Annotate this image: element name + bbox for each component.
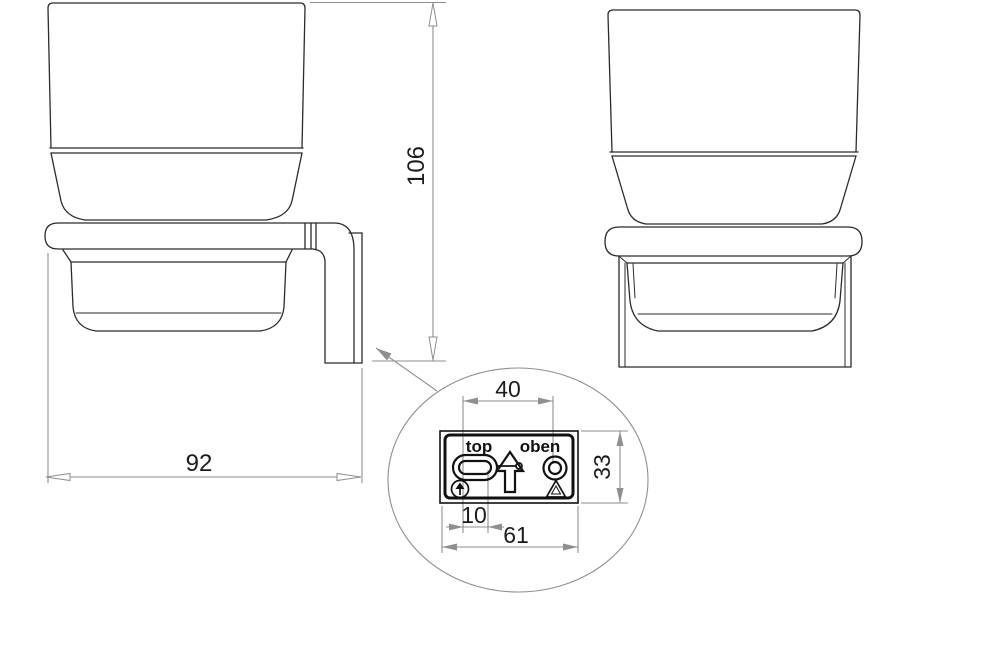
front-glass <box>627 263 843 331</box>
dim-label-40: 40 <box>495 376 521 402</box>
dim-label-10: 10 <box>461 502 487 528</box>
plate-label-top: top <box>466 437 492 456</box>
side-holder-ring <box>45 223 318 249</box>
front-wall-bracket <box>619 256 851 367</box>
front-cup-base <box>612 156 856 224</box>
arrow-left-icon <box>488 524 502 531</box>
detail-leader <box>376 348 437 391</box>
side-glass <box>71 262 286 331</box>
arrow-down-icon <box>429 337 437 360</box>
arrow-right-icon <box>337 474 361 481</box>
front-view <box>605 10 862 367</box>
arrow-left-icon <box>46 474 70 481</box>
object-layer <box>45 3 862 367</box>
side-view <box>45 3 362 363</box>
recycle-triangle-icon <box>547 481 566 498</box>
side-cup-base <box>51 153 302 220</box>
arrow-left-icon <box>463 398 478 405</box>
dim-label-61: 61 <box>503 522 529 548</box>
side-wall-bracket <box>313 223 362 363</box>
arrow-right-icon <box>538 398 553 405</box>
front-holder-ring <box>605 227 862 256</box>
front-cup-body <box>608 10 860 152</box>
dim-label-33: 33 <box>589 454 615 480</box>
drawing-svg: 106 92 40 33 10 61 top oben <box>0 0 1000 656</box>
text-layer: 106 92 40 33 10 61 top oben <box>186 146 615 548</box>
dim-label-106: 106 <box>403 146 430 186</box>
arrow-up-icon <box>617 431 624 446</box>
leader-arrow-icon <box>376 348 392 361</box>
arrow-left-icon <box>442 544 457 551</box>
dim-label-92: 92 <box>186 450 213 477</box>
side-cup-body <box>48 3 305 148</box>
mounting-hole <box>544 457 567 480</box>
technical-drawing: 106 92 40 33 10 61 top oben <box>0 0 1000 656</box>
arrow-right-icon <box>563 544 578 551</box>
dimension-depth-92 <box>46 253 362 483</box>
arrow-up-icon <box>429 3 437 26</box>
this-side-up-icon <box>452 481 469 498</box>
arrow-down-icon <box>617 488 624 503</box>
plate-label-oben: oben <box>520 437 561 456</box>
up-arrow-icon <box>497 452 523 492</box>
